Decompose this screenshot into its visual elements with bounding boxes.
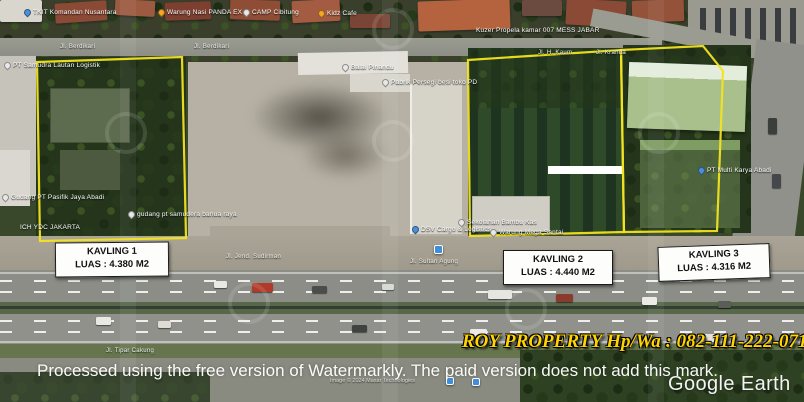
kavling-area: LUAS : 4.316 M2 [665,260,763,276]
plot-3-outline [621,46,723,232]
place-pin-icon[interactable] [341,63,351,73]
map-label-text: Kidz Cafe [327,10,357,17]
map-label: DSV Cargo & Logistics [412,226,491,233]
map-label-text: Gudang PT Pasifik Jaya Abadi [11,194,104,201]
place-pin-icon[interactable] [1,193,11,203]
map-label-text: Pabrik Persegi besi toko PD [391,79,477,86]
map-label-text: TKIT Komandan Nusantara [33,9,117,16]
google-earth-logo: Google Earth [668,373,791,396]
map-label: Balai Pinandu [342,64,394,71]
street-label: Jl. H. Kaum [538,50,572,56]
place-pin-icon[interactable] [23,8,33,18]
satellite-map: TKIT Komandan Nusantara Warung Nasi PAND… [0,0,804,402]
map-label: ICH YDC JAKARTA [20,224,80,231]
photo-marker-icon[interactable] [434,245,443,254]
map-label: Gudang PT Pasifik Jaya Abadi [2,194,104,201]
kavling-1-label-box: KAVLING 1 LUAS : 4.380 M2 [55,242,169,278]
map-label-text: CAMP Cibitung [252,9,299,16]
place-pin-icon[interactable] [411,225,421,235]
map-label-text: Balai Pinandu [351,64,394,71]
map-label-text: Warung Nasi PANDA EX [167,9,242,16]
place-pin-icon[interactable] [317,9,327,19]
place-pin-icon[interactable] [242,8,252,18]
map-label: TKIT Komandan Nusantara [24,9,117,16]
map-label-text: PT Multi Karya Abadi [707,167,772,174]
kavling-3-label-box: KAVLING 3 LUAS : 4.316 M2 [657,243,770,282]
map-label: Warung Mega Santai [490,229,563,236]
map-label-text: Sekolahan Bambu Kas [467,219,537,226]
map-label-text: Kuzer Propela kamar 007 MESS JABAR [476,27,600,34]
kavling-title: KAVLING 1 [62,246,162,260]
map-label-text: DSV Cargo & Logistics [421,226,491,233]
kavling-2-label-box: KAVLING 2 LUAS : 4.440 M2 [503,250,613,285]
map-label-text: Warung Mega Santai [499,229,563,236]
place-pin-icon[interactable] [697,166,707,176]
map-label: PT Samudra Lautan Logistik [4,62,100,69]
map-label: Sekolahan Bambu Kas [458,219,537,226]
street-label: Jl. Jend. Sudirman [226,254,281,260]
map-label: Kidz Cafe [318,10,357,17]
street-label: Jl. Berdikari [60,44,95,50]
place-pin-icon[interactable] [381,78,391,88]
map-label: Pabrik Persegi besi toko PD [382,79,477,86]
place-pin-icon[interactable] [157,8,167,18]
kavling-area: LUAS : 4.380 M2 [62,258,162,272]
map-label-text: ICH YDC JAKARTA [20,224,80,231]
map-label: PT Multi Karya Abadi [698,167,772,174]
map-label: Warung Nasi PANDA EX [158,9,242,16]
plot-2-outline [468,50,624,236]
place-pin-icon[interactable] [457,218,467,228]
map-label: CAMP Cibitung [243,9,299,16]
kavling-title: KAVLING 2 [510,254,606,267]
street-label: Jl. Kranda [596,50,626,56]
street-label: Jl. Sultan Agung [410,259,458,265]
street-label: Jl. Berdikari [194,44,229,50]
kavling-area: LUAS : 4.440 M2 [510,267,606,280]
watermarkly-notice: Processed using the free version of Wate… [37,361,718,381]
place-pin-icon[interactable] [127,210,137,220]
map-label-text: gudang pt samudera banua raya [137,211,237,218]
map-label: Kuzer Propela kamar 007 MESS JABAR [476,27,600,34]
map-label: gudang pt samudera banua raya [128,211,237,218]
place-pin-icon[interactable] [489,228,499,238]
place-pin-icon[interactable] [3,61,13,71]
contact-banner: ROY PROPERTY Hp/Wa : 082-111-222-071 [462,331,804,353]
map-label-text: PT Samudra Lautan Logistik [13,62,100,69]
street-label: Jl. Tipar Cakung [106,348,154,354]
